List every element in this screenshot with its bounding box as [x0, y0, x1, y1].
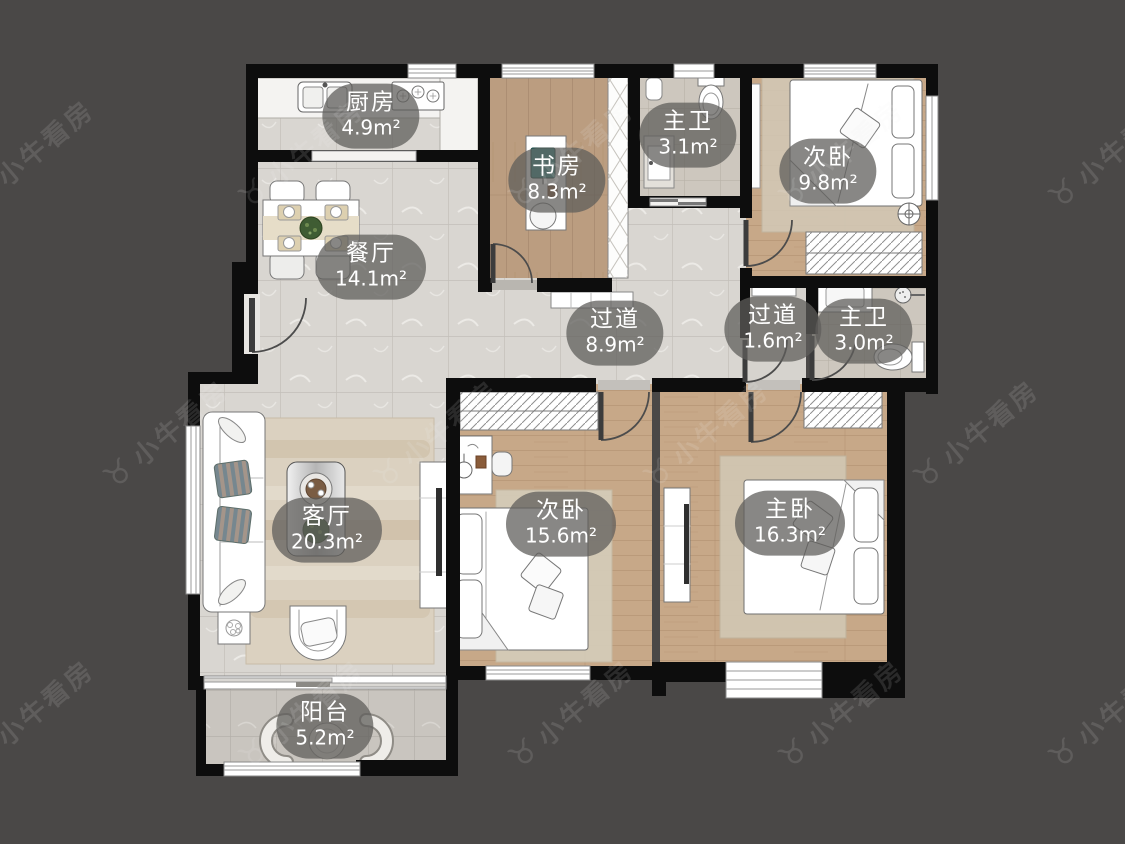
armchair — [290, 606, 346, 660]
bath-top-sink-icon — [644, 136, 674, 188]
study-desk — [526, 136, 566, 230]
tv-icon — [684, 504, 689, 584]
tv-cabinet — [420, 462, 448, 608]
desk-chair — [492, 452, 512, 476]
toilet-right-icon — [874, 342, 924, 372]
master-tv-cabinet — [664, 488, 690, 602]
pillow — [892, 86, 914, 138]
hallway-connector-floor — [628, 208, 746, 288]
window-master-bottom — [726, 662, 822, 698]
coffee-table — [287, 462, 345, 556]
radiator — [551, 292, 633, 308]
tv-icon — [436, 488, 442, 576]
bedroom-middle-bed — [452, 508, 588, 650]
pillow — [892, 144, 914, 198]
kitchen-sink-icon — [298, 82, 352, 112]
pillow — [854, 548, 878, 604]
window-bedroom-top — [804, 64, 876, 78]
toilet-icon — [698, 76, 724, 119]
master-bed — [744, 480, 884, 614]
striped-cushion — [214, 506, 252, 544]
urinal-icon — [646, 78, 662, 100]
sliding-door-balcony — [204, 676, 446, 689]
sofa — [203, 412, 265, 612]
bedroom-middle-wardrobe — [460, 392, 598, 430]
stove-icon — [392, 82, 444, 110]
bedroom-top-bed — [790, 80, 922, 206]
ac-unit-icon — [898, 203, 920, 225]
window-living-left — [186, 426, 200, 594]
pillow — [854, 488, 878, 542]
window-kitchen-top — [408, 64, 456, 78]
window-bath-top — [674, 64, 714, 78]
floorplan-svg — [0, 0, 1125, 844]
window-bedroom-middle-bottom — [486, 666, 590, 680]
monitor-icon — [531, 148, 555, 178]
window-balcony-bottom — [224, 762, 360, 776]
master-wardrobe — [804, 388, 882, 428]
study-cabinet — [608, 74, 628, 278]
bedroom-top-wardrobe — [806, 232, 922, 274]
window-bedroom-top-right — [926, 96, 938, 200]
balcony-table — [309, 723, 345, 759]
window-study-top — [502, 64, 594, 78]
striped-cushion — [214, 460, 252, 498]
side-table — [218, 612, 250, 644]
floorplan-canvas: 厨房 4.9m² 书房 8.3m² 主卫 3.1m² 次卧 9.8m² 餐厅 1… — [0, 0, 1125, 844]
plant-icon — [300, 217, 322, 239]
plant-icon — [303, 517, 329, 543]
kitchen-pass-through — [312, 151, 416, 161]
